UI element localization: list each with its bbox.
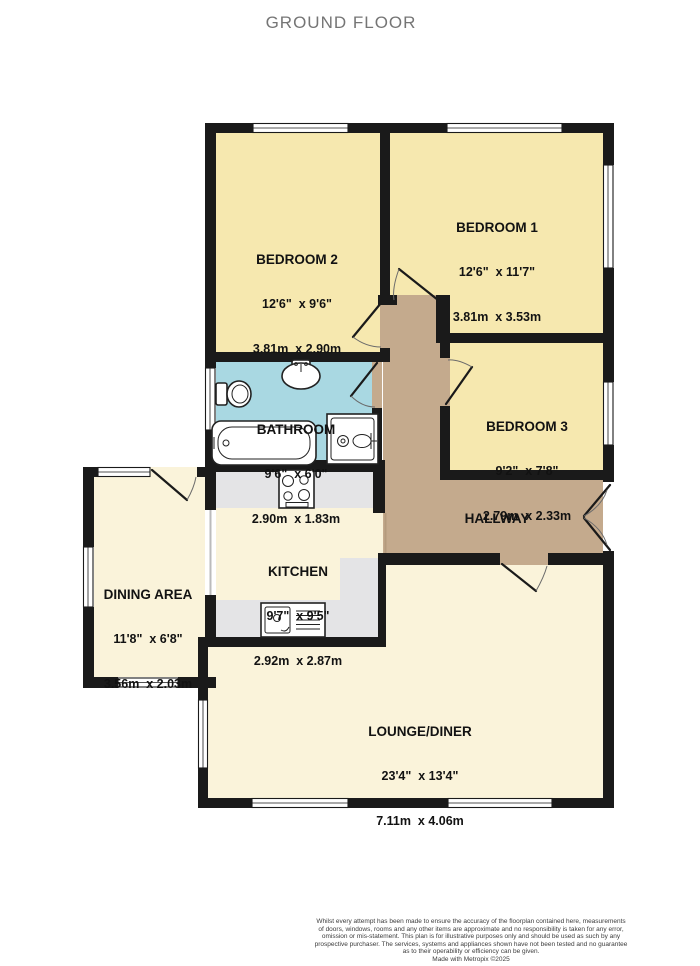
floorplan-canvas bbox=[0, 0, 700, 966]
window-bathroom-left bbox=[206, 368, 216, 430]
label-hallway: HALLWAY bbox=[465, 511, 530, 526]
bedroom1-door-gap bbox=[397, 295, 436, 305]
bathroom-toilet bbox=[216, 381, 251, 407]
label-bedroom-3: BEDROOM 3 9'2" x 7'8" 2.79m x 2.33m bbox=[483, 389, 571, 554]
label-bathroom: BATHROOM 9'6" x 6'0" 2.90m x 1.83m bbox=[252, 392, 340, 557]
window-bedroom3-right bbox=[604, 382, 614, 445]
label-dining-area: DINING AREA 11'8" x 6'8" 3.56m x 2.03m bbox=[104, 557, 193, 722]
metropix-credit: Made with Metropix ©2025 bbox=[286, 956, 656, 964]
window-lounge-left bbox=[199, 700, 208, 768]
label-kitchen: KITCHEN 9'7" x 9'5" 2.92m x 2.87m bbox=[254, 534, 342, 699]
window-bedroom2-top bbox=[253, 124, 348, 133]
label-bedroom-1: BEDROOM 1 12'6" x 11'7" 3.81m x 3.53m bbox=[453, 190, 541, 355]
window-dining-left bbox=[84, 547, 94, 607]
bedroom2-door-gap bbox=[380, 302, 390, 348]
window-dining-top bbox=[98, 468, 150, 477]
window-lounge-bottom-left bbox=[252, 799, 348, 808]
floorplan-page: GROUND FLOOR bbox=[0, 0, 700, 966]
disclaimer: Whilst every attempt has been made to en… bbox=[286, 918, 656, 964]
label-lounge-diner: LOUNGE/DINER 23'4" x 13'4" 7.11m x 4.06m bbox=[368, 694, 472, 859]
label-bedroom-2: BEDROOM 2 12'6" x 9'6" 3.81m x 2.90m bbox=[253, 222, 341, 387]
window-bedroom1-top bbox=[447, 124, 562, 133]
kitchen-counter-right bbox=[340, 558, 380, 637]
window-bedroom1-right bbox=[604, 165, 614, 268]
hallway-corridor bbox=[383, 300, 440, 480]
